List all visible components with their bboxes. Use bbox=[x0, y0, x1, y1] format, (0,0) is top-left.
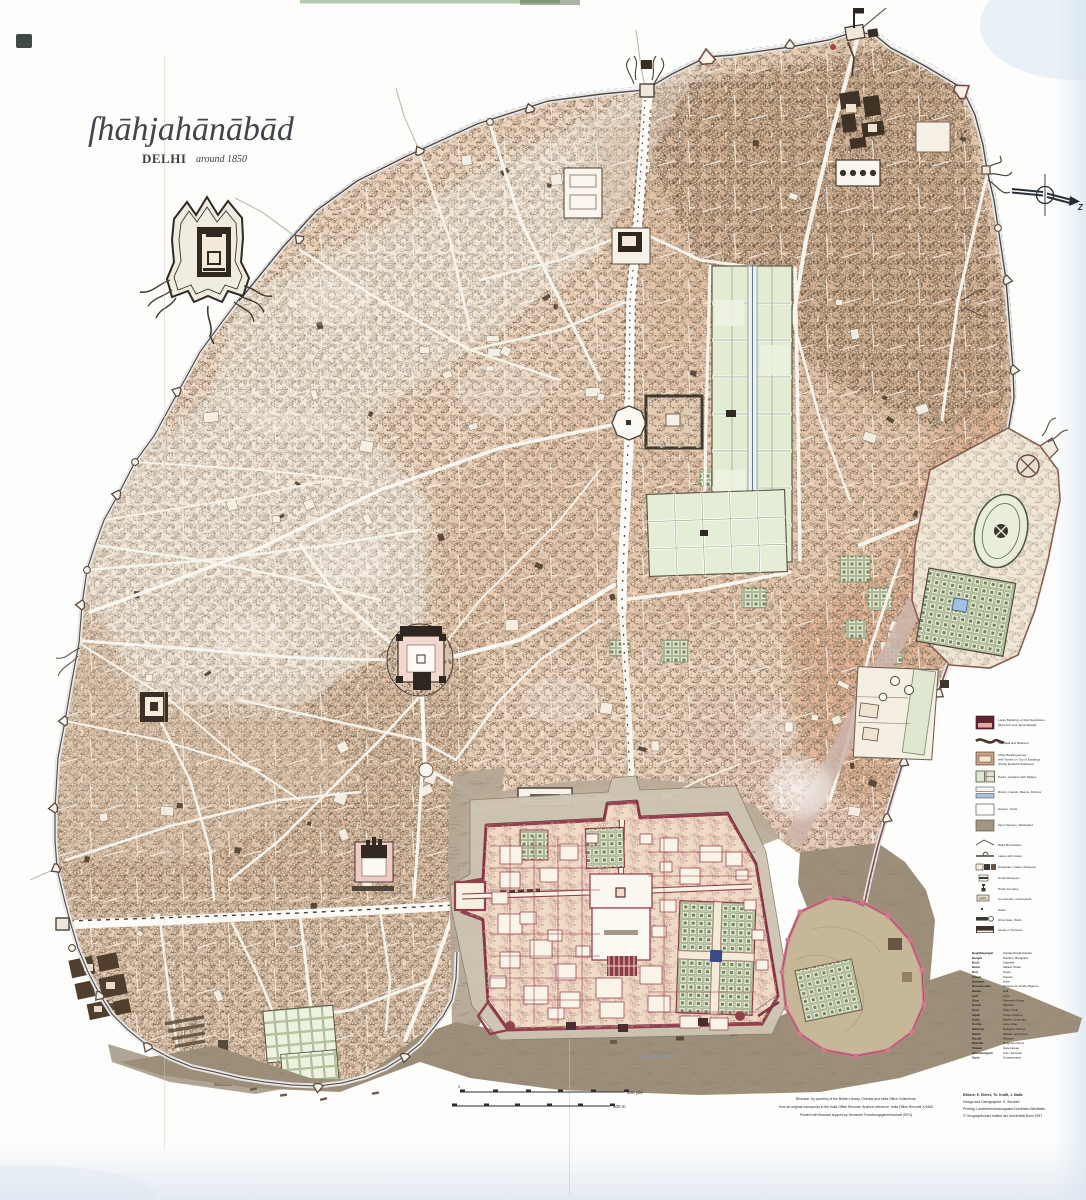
svg-text:Religious School: Religious School bbox=[1003, 1027, 1026, 1031]
svg-text:Phatak: Phatak bbox=[972, 1046, 982, 1050]
svg-text:(Partly Doubtful Sidelines): (Partly Doubtful Sidelines) bbox=[998, 762, 1034, 766]
svg-text:Prayer Ground: Prayer Ground bbox=[1003, 1013, 1023, 1017]
svg-text:Bangla: Bangla bbox=[972, 956, 982, 960]
svg-text:Idgah: Idgah bbox=[972, 1013, 980, 1017]
svg-text:Water Tank: Water Tank bbox=[1003, 1008, 1019, 1012]
svg-text:Printed with financial support: Printed with financial support by Deutsc… bbox=[800, 1113, 912, 1117]
svg-text:Mosque: Mosque bbox=[1003, 1037, 1014, 1041]
svg-text:Ghats or Terraces: Ghats or Terraces bbox=[998, 928, 1023, 932]
svg-text:Bazar: Bazar bbox=[972, 965, 981, 969]
svg-text:Pavilion, Bungalow: Pavilion, Bungalow bbox=[1003, 956, 1029, 960]
svg-text:Market Courtyard: Market Courtyard bbox=[1003, 1018, 1027, 1022]
svg-text:from an original manuscript in: from an original manuscript in the India… bbox=[779, 1105, 933, 1109]
svg-text:around 1850: around 1850 bbox=[196, 154, 247, 165]
svg-text:Printing: Landesvermessungsamt: Printing: Landesvermessungsamt Nordrhein… bbox=[963, 1107, 1045, 1111]
svg-text:Ward Boundaries: Ward Boundaries bbox=[998, 843, 1022, 847]
svg-text:Madrasa: Madrasa bbox=[972, 1027, 985, 1031]
svg-text:Older Building Areas: Older Building Areas bbox=[998, 753, 1027, 757]
svg-text:Neighbourhood: Neighbourhood bbox=[1003, 1041, 1024, 1045]
svg-text:Stepwell: Stepwell bbox=[1003, 961, 1015, 965]
svg-text:(Red Fort and Jama Masjid): (Red Fort and Jama Masjid) bbox=[998, 723, 1036, 727]
svg-text:Kucha: Kucha bbox=[972, 1022, 982, 1026]
svg-text:Gate: Gate bbox=[1003, 980, 1010, 984]
svg-text:Haveli: Haveli bbox=[972, 1003, 981, 1007]
svg-text:Darwaza: Darwaza bbox=[972, 980, 985, 984]
svg-text:Wells: Wells bbox=[998, 908, 1006, 912]
svg-text:Lane: Lane bbox=[1003, 994, 1010, 998]
svg-text:City Wall and Bastions: City Wall and Bastions bbox=[998, 741, 1029, 745]
svg-text:Katra: Katra bbox=[972, 1018, 980, 1022]
svg-text:Mahal: Mahal bbox=[972, 1032, 981, 1036]
svg-text:Qila/Salimgarh: Qila/Salimgarh bbox=[972, 1051, 993, 1055]
svg-text:Lane, Alley: Lane, Alley bbox=[1003, 1022, 1018, 1026]
svg-text:500 yds: 500 yds bbox=[627, 1090, 644, 1095]
svg-text:Sarwanas, Gates, Mosques: Sarwanas, Gates, Mosques bbox=[998, 865, 1036, 869]
svg-text:Market Street: Market Street bbox=[1003, 965, 1021, 969]
svg-text:Dharamshala: Dharamshala bbox=[972, 984, 991, 988]
svg-text:Bagh/Baghigat: Bagh/Baghigat bbox=[972, 951, 993, 955]
svg-text:Hindu Temples: Hindu Temples bbox=[998, 887, 1019, 891]
svg-text:Square: Square bbox=[1003, 975, 1013, 979]
svg-text:Small Mosques: Small Mosques bbox=[998, 876, 1020, 880]
svg-text:ſhāhjahānābād: ſhāhjahānābād bbox=[88, 111, 295, 148]
svg-text:Redrawn, by courtesy of the Br: Redrawn, by courtesy of the British Libr… bbox=[796, 1097, 917, 1101]
svg-text:Hauz: Hauz bbox=[972, 1008, 980, 1012]
svg-text:Burj: Burj bbox=[972, 970, 978, 974]
svg-text:Lanes with Gates: Lanes with Gates bbox=[998, 854, 1022, 858]
svg-text:GHS: GHS bbox=[979, 897, 987, 901]
svg-text:Ghat: Ghat bbox=[972, 999, 979, 1003]
svg-text:Garden/Small Garden: Garden/Small Garden bbox=[1003, 951, 1033, 955]
svg-text:Palace, Apartment: Palace, Apartment bbox=[1003, 1032, 1028, 1036]
svg-text:Mohalla: Mohalla bbox=[972, 1041, 983, 1045]
svg-text:with Tombs on Top of Buildings: with Tombs on Top of Buildings bbox=[998, 758, 1041, 762]
svg-text:© Geographisches Institut der: © Geographisches Institut der Universitä… bbox=[963, 1114, 1042, 1118]
svg-text:Riverside Steps: Riverside Steps bbox=[1003, 999, 1025, 1003]
svg-text:Open Spaces, Wasteland: Open Spaces, Wasteland bbox=[998, 823, 1033, 827]
svg-text:Fort / Fortress: Fort / Fortress bbox=[1003, 1051, 1022, 1055]
svg-text:Hall: Hall bbox=[1003, 989, 1009, 993]
svg-text:500 m: 500 m bbox=[613, 1104, 626, 1109]
svg-text:Hospice for Hindu Pilgrims: Hospice for Hindu Pilgrims bbox=[1003, 984, 1039, 988]
svg-text:Caravanserai: Caravanserai bbox=[1003, 1056, 1021, 1060]
svg-text:Tower: Tower bbox=[1003, 970, 1011, 974]
svg-text:Sarai: Sarai bbox=[972, 1056, 980, 1060]
svg-text:Rivers, Canals, Basins, Ditche: Rivers, Canals, Basins, Ditches bbox=[998, 790, 1042, 794]
svg-text:Editors: E. Ehlers, Th. Krafft: Editors: E. Ehlers, Th. Krafft, J. Malik bbox=[963, 1093, 1022, 1097]
svg-text:Masjid: Masjid bbox=[972, 1037, 982, 1041]
svg-text:Diwan: Diwan bbox=[972, 989, 981, 993]
svg-text:Streets, Yards: Streets, Yards bbox=[998, 807, 1018, 811]
svg-text:Gali: Gali bbox=[972, 994, 978, 998]
svg-text:Design and Cartographer: S. St: Design and Cartographer: S. Stockert bbox=[963, 1100, 1020, 1104]
svg-text:Chauk: Chauk bbox=[972, 975, 982, 979]
svg-text:Ghat Gate, Wells: Ghat Gate, Wells bbox=[998, 918, 1022, 922]
svg-text:Large Buildings of Red Sandsto: Large Buildings of Red Sandstone bbox=[998, 718, 1045, 722]
svg-text:Parks, Gardens with Ridges: Parks, Gardens with Ridges bbox=[998, 775, 1037, 779]
svg-text:Baoli: Baoli bbox=[972, 961, 980, 965]
svg-text:Cemeteries, Graveyards: Cemeteries, Graveyards bbox=[998, 897, 1032, 901]
svg-text:Gate House: Gate House bbox=[1003, 1046, 1019, 1050]
svg-text:Mansion: Mansion bbox=[1003, 1003, 1015, 1007]
